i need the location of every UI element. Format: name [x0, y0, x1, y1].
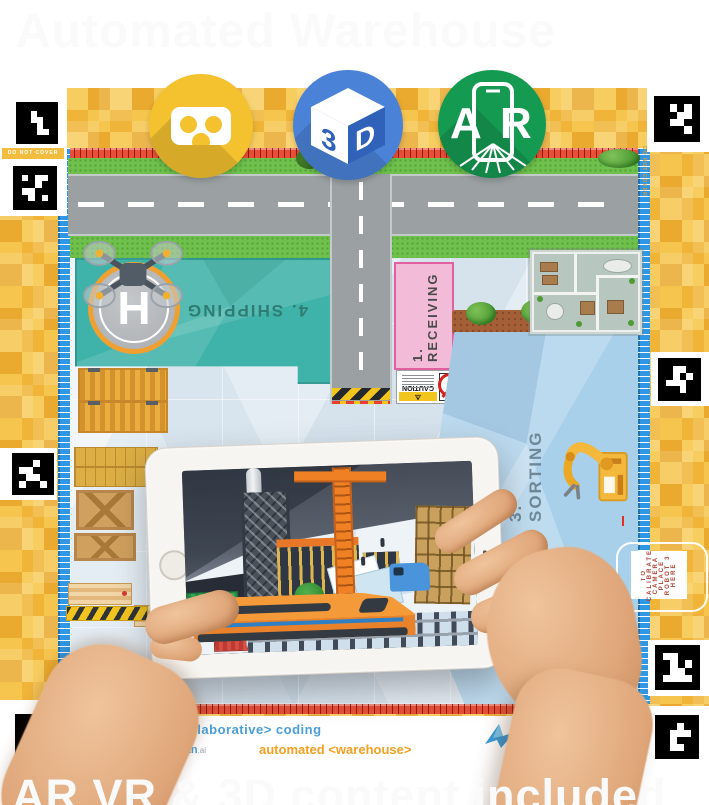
ar-crane-arm	[294, 471, 386, 480]
zone-receiving-label: 1. RECEIVING	[410, 270, 440, 362]
3d-cube-icon: 3 D	[293, 70, 403, 180]
shipping-container	[78, 401, 168, 433]
office-floor	[534, 254, 638, 330]
do-not-cover-tag: DO NOT COVER	[2, 148, 64, 159]
ar-person	[380, 538, 384, 547]
marker-patch-right-1	[651, 352, 709, 406]
meeting-table	[603, 259, 632, 273]
calibration-arrow	[622, 516, 624, 526]
vr-cardboard-icon	[149, 74, 253, 178]
robot-arm-icon	[552, 428, 634, 508]
aruco-marker	[655, 645, 700, 690]
poster: Automated Warehouse 4. SHIPPING H	[0, 0, 709, 805]
aruco-marker	[12, 453, 54, 495]
office-floorplan	[530, 250, 642, 334]
hazard-stripe	[332, 388, 390, 400]
marker-patch-top-left: DO NOT COVER	[0, 80, 67, 216]
page-title: Automated Warehouse	[16, 4, 556, 59]
aruco-marker	[16, 102, 58, 144]
caution-fine-print	[402, 375, 434, 390]
bush	[466, 302, 496, 325]
bush	[598, 149, 640, 168]
striped-box	[68, 583, 132, 605]
shipping-container	[78, 368, 168, 402]
marker-patch-bottom-right	[646, 706, 709, 765]
marker-patch-top-right	[647, 84, 709, 152]
bottom-tagline: AR VR & 3D content included	[12, 770, 667, 805]
ar-train-windshield	[358, 598, 390, 613]
caution-label: ⚠ CAUTION	[399, 392, 437, 401]
ar-person	[361, 557, 365, 566]
zone-receiving: 1. RECEIVING	[394, 262, 454, 370]
aruco-marker	[655, 715, 699, 759]
aruco-marker	[13, 166, 57, 210]
do-not-cover-label: DO NOT COVER	[641, 146, 647, 197]
cube-char-3: 3	[321, 121, 337, 160]
drone-icon	[80, 238, 186, 310]
desk	[542, 275, 558, 285]
ar-truck	[389, 562, 430, 591]
road-vertical	[330, 174, 392, 404]
calibration-text: TO CALIBRATE CAMERA PLACE ROBOT 3 HERE	[631, 551, 687, 599]
round-table	[546, 303, 564, 320]
wooden-crate	[74, 533, 136, 561]
hazard-line	[332, 401, 390, 404]
aruco-marker	[654, 96, 700, 142]
marker-patch-left	[0, 448, 57, 500]
marker-patch-right-2	[648, 640, 709, 696]
desk	[540, 262, 558, 272]
zone-shipping-label: 4. SHIPPING	[162, 300, 332, 320]
vr-goggle-glyph	[171, 107, 231, 145]
conveyor-horizontal	[66, 606, 148, 621]
ar-phone-icon: A R	[438, 70, 546, 178]
automated-warehouse-logo: automated <warehouse>	[259, 742, 411, 757]
wooden-crate	[76, 490, 134, 530]
ar-letter-a: A	[450, 99, 482, 148]
aruco-marker	[658, 358, 701, 401]
desk	[607, 300, 625, 314]
road-vertical-line	[359, 182, 363, 382]
ar-letter-r: R	[500, 99, 532, 148]
desk	[580, 301, 596, 314]
ruler-right	[638, 148, 650, 704]
